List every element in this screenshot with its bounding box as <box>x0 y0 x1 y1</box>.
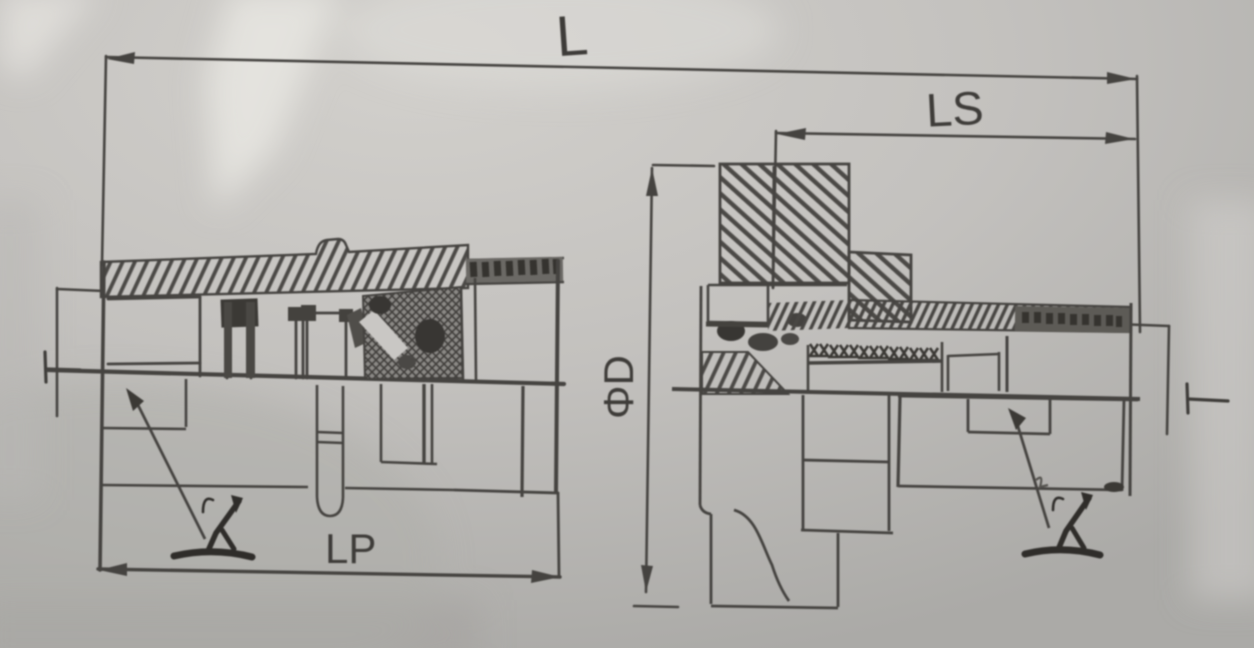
svg-text:L: L <box>554 3 590 69</box>
svg-text:LS: LS <box>925 81 985 137</box>
svg-text:LP: LP <box>325 525 376 572</box>
svg-text:ΦD: ΦD <box>595 355 642 419</box>
